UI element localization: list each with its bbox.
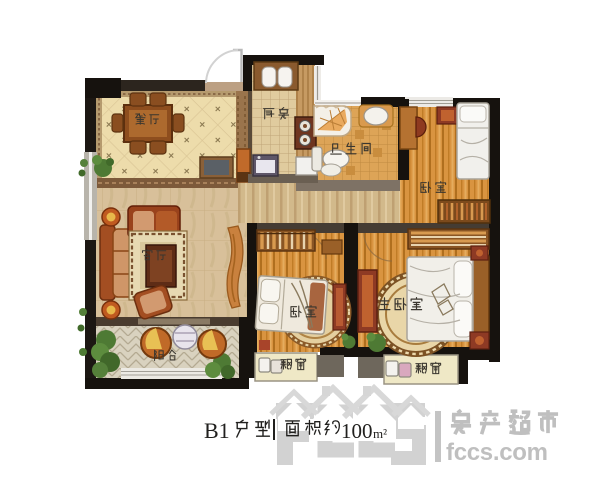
svg-text:100: 100 xyxy=(341,419,373,443)
svg-text:B1: B1 xyxy=(204,418,230,443)
svg-text:fccs.com: fccs.com xyxy=(446,439,548,466)
svg-text:m²: m² xyxy=(373,426,387,441)
